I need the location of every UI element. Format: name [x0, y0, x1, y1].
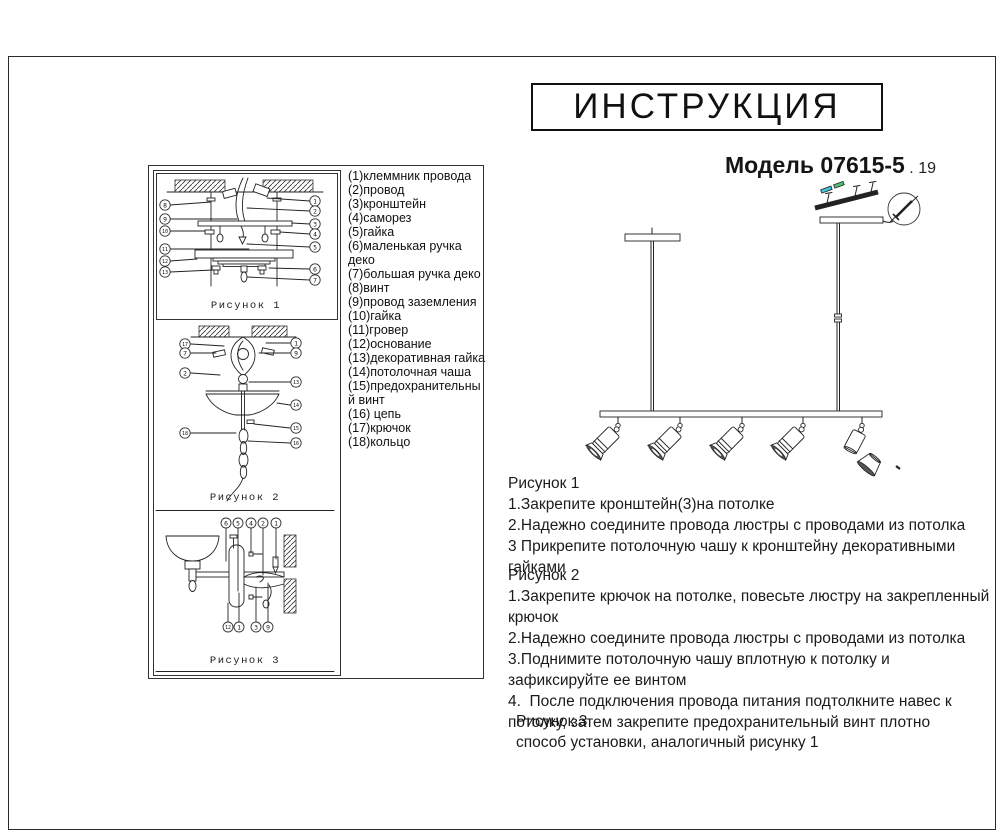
instruction-sheet: ИНСТРУКЦИЯ Модель 07615-5 . 19	[0, 0, 1000, 833]
svg-text:10: 10	[162, 229, 168, 235]
spotlight-stem	[616, 417, 620, 428]
sconce-parts	[166, 535, 284, 608]
instructions-figure-1: Рисунок 1 1.Закрепите кронштейн(3)на пот…	[508, 473, 990, 578]
figure-column: 8 9 10 11 12 13 1 2	[153, 170, 341, 676]
parts-list-item: (13)декоративная гайка	[348, 351, 486, 365]
parts-list-item: (9)провод заземления	[348, 295, 486, 309]
spotlights	[585, 417, 900, 477]
svg-text:6: 6	[224, 519, 228, 527]
svg-text:3: 3	[313, 220, 317, 228]
spotlight-stem	[678, 417, 682, 428]
parts-list-item: (4)саморез	[348, 211, 486, 225]
figure-2-caption: Рисунок 2	[210, 492, 280, 504]
instruction-step: 1.Закрепите кронштейн(3)на потолке	[508, 494, 990, 515]
svg-text:9: 9	[294, 349, 298, 357]
parts-list-item: (6)маленькая ручка деко	[348, 239, 486, 267]
svg-text:1: 1	[274, 519, 278, 527]
svg-text:2: 2	[183, 369, 187, 377]
svg-text:2: 2	[261, 519, 265, 527]
svg-text:4: 4	[313, 230, 317, 238]
instructions-heading: Рисунок 1	[508, 473, 990, 494]
svg-text:13: 13	[162, 270, 168, 276]
parts-list-item: (18)кольцо	[348, 435, 486, 449]
parts-list-item: (2)провод	[348, 183, 486, 197]
model-suffix: . 19	[905, 160, 936, 177]
parts-list-item: (3)кронштейн	[348, 197, 486, 211]
svg-text:4: 4	[249, 519, 253, 527]
right-rod-assembly	[815, 181, 920, 412]
model-number: Модель 07615-5 . 19	[620, 152, 936, 179]
svg-text:5: 5	[313, 243, 317, 251]
instruction-step: 2.Надежно соедините провода люстры с про…	[508, 628, 990, 649]
figures-panel: 8 9 10 11 12 13 1 2	[148, 165, 484, 679]
spotlight-stem	[740, 417, 744, 428]
loose-screw	[896, 466, 900, 469]
parts-list-item: (14)потолочная чаша	[348, 365, 486, 379]
instruction-step: 3.Поднимите потолочную чашу вплотную к п…	[508, 649, 990, 691]
left-rod-assembly	[625, 228, 680, 412]
ceiling-hatch	[191, 326, 296, 337]
svg-text:7: 7	[183, 349, 187, 357]
parts-list-item: (16) цепь	[348, 407, 486, 421]
instructions-heading: Рисунок 3	[516, 711, 986, 732]
parts-list-item: (15)предохранительный винт	[348, 379, 486, 407]
svg-text:16: 16	[293, 441, 299, 447]
svg-text:14: 14	[293, 403, 299, 409]
wall-hatch	[284, 535, 296, 613]
svg-text:1: 1	[294, 339, 298, 347]
figure-2-drawing: 17 7 2 18 1 9 13 14 15 16 Р	[156, 320, 334, 513]
svg-text:1: 1	[237, 623, 241, 631]
fixture-bar	[600, 411, 882, 417]
svg-text:6: 6	[313, 265, 317, 273]
figure-1-box: 8 9 10 11 12 13 1 2	[156, 173, 338, 320]
svg-text:9: 9	[266, 623, 270, 631]
svg-text:5: 5	[236, 519, 240, 527]
instructions-heading: Рисунок 2	[508, 565, 990, 586]
figure-1-caption: Рисунок 1	[211, 300, 281, 312]
svg-text:18: 18	[182, 431, 188, 437]
highlighted-screw-cyan	[821, 186, 833, 193]
svg-text:12: 12	[225, 625, 231, 631]
figure-3-caption: Рисунок 3	[210, 655, 280, 667]
svg-text:7: 7	[313, 276, 317, 284]
parts-list-item: (17)крючок	[348, 421, 486, 435]
svg-text:11: 11	[162, 247, 168, 253]
svg-text:8: 8	[163, 201, 167, 209]
svg-text:3: 3	[254, 623, 258, 631]
instruction-step: 1.Закрепите крючок на потолке, повесьте …	[508, 586, 990, 628]
parts-list-item: (5)гайка	[348, 225, 486, 239]
parts-list-item: (8)винт	[348, 281, 486, 295]
instructions-figure-3: Рисунок 3 способ установки, аналогичный …	[516, 711, 986, 753]
parts-list-item: (1)клеммник провода	[348, 169, 486, 183]
figure-2-callouts: 17 7 2 18 1 9 13 14 15 16	[180, 338, 301, 448]
svg-text:12: 12	[162, 259, 168, 265]
spotlight-stem	[860, 417, 864, 428]
model-label: Модель 07615-5	[725, 152, 905, 178]
figure-3-drawing: 6 5 4 2 1 12 1 3 9 Рисунок 3	[156, 515, 334, 675]
chandelier-drawing	[528, 182, 998, 477]
magnified-screw-icon	[888, 193, 920, 225]
instruction-step: способ установки, аналогичный рисунку 1	[516, 732, 986, 753]
parts-list-item: (10)гайка	[348, 309, 486, 323]
svg-text:1: 1	[313, 197, 317, 205]
page-title: ИНСТРУКЦИЯ	[573, 87, 840, 127]
parts-list-item: (7)большая ручка деко	[348, 267, 486, 281]
parts-list-item: (11)гровер	[348, 323, 486, 337]
svg-text:2: 2	[313, 207, 317, 215]
figure-1-callouts: 8 9 10 11 12 13 1 2	[160, 196, 320, 285]
parts-list: (1)клеммник провода (2)провод (3)кронште…	[342, 167, 486, 449]
svg-text:9: 9	[163, 215, 167, 223]
spotlight-no-shade	[843, 424, 868, 455]
svg-text:15: 15	[293, 426, 299, 432]
title-box: ИНСТРУКЦИЯ	[531, 83, 883, 131]
figure-1-drawing: 8 9 10 11 12 13 1 2	[157, 174, 335, 317]
spotlight-stem	[801, 417, 805, 428]
highlighted-screw-green	[834, 181, 845, 188]
parts-list-item: (12)основание	[348, 337, 486, 351]
instruction-step: 2.Надежно соедините провода люстры с про…	[508, 515, 990, 536]
svg-text:17: 17	[182, 342, 188, 348]
instructions-figure-2: Рисунок 2 1.Закрепите крючок на потолке,…	[508, 565, 990, 733]
hook-and-chain	[206, 337, 279, 501]
svg-text:13: 13	[293, 380, 299, 386]
